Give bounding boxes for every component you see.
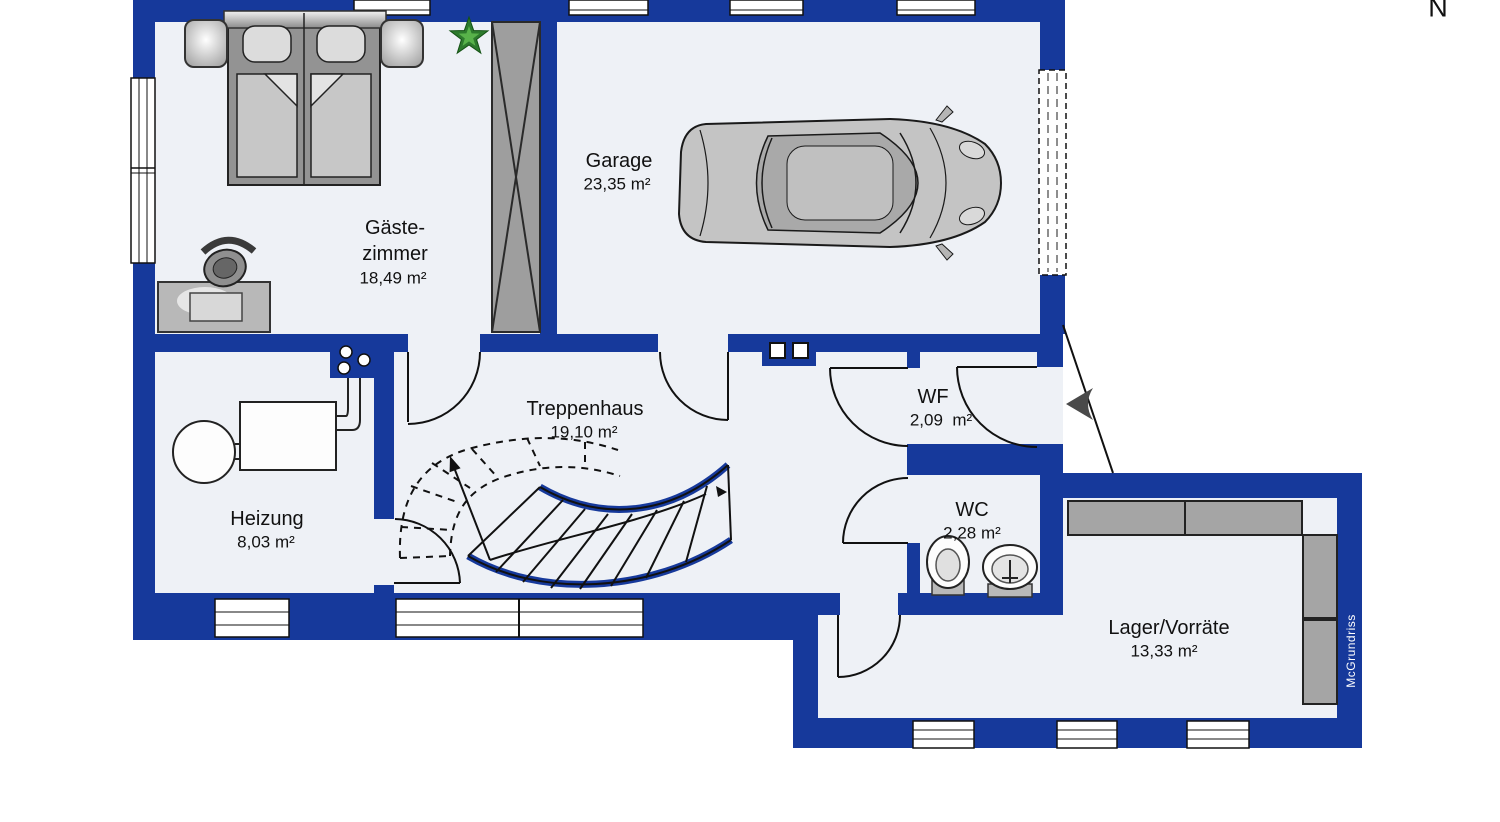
north-indicator: N	[1428, 0, 1448, 22]
doorway-gap	[1037, 367, 1063, 447]
wall	[1040, 473, 1362, 498]
doorway-gap	[840, 593, 898, 615]
sink-icon	[983, 545, 1037, 597]
wall	[907, 352, 920, 368]
room-area-treppenhaus: 19,10 m²	[550, 424, 617, 441]
shelf-icon	[1068, 501, 1185, 535]
room-area-gaestezimmer: 18,49 m²	[359, 270, 426, 287]
room-label-gaestezimmer-line2: zimmer	[362, 244, 428, 264]
floor-corridor	[818, 615, 1063, 718]
room-label-lager: Lager/Vorräte	[1108, 618, 1229, 638]
window	[131, 78, 155, 263]
wall	[480, 334, 658, 352]
window	[215, 599, 289, 637]
wall	[1337, 473, 1362, 748]
toilet-icon	[927, 536, 969, 595]
double-bed-icon	[224, 11, 386, 185]
room-area-garage: 23,35 m²	[583, 176, 650, 193]
garage-door	[1039, 70, 1066, 275]
room-label-gaestezimmer-line1: Gäste-	[365, 218, 425, 238]
room-label-wf: WF	[917, 387, 948, 407]
sideboard-icon	[158, 282, 270, 332]
car-icon	[679, 106, 1001, 260]
room-label-wc: WC	[955, 500, 988, 520]
wall	[1037, 334, 1063, 367]
wardrobe-icon	[492, 22, 540, 332]
nightstand-icon	[185, 20, 227, 67]
wall	[818, 593, 840, 615]
water-tank-icon	[173, 421, 235, 483]
window	[1057, 721, 1117, 748]
room-label-heizung: Heizung	[230, 509, 303, 529]
room-label-treppenhaus: Treppenhaus	[526, 399, 643, 419]
floorplan-drawing	[0, 0, 1500, 822]
wall	[898, 593, 1063, 615]
meter-box-icon	[762, 336, 816, 366]
window	[913, 721, 974, 748]
window	[1187, 721, 1249, 748]
watermark-text: McGrundriss	[1345, 614, 1357, 688]
room-area-heizung: 8,03 m²	[237, 534, 295, 551]
window	[569, 0, 648, 15]
room-area-lager: 13,33 m²	[1130, 643, 1197, 660]
floorplan-canvas: Gäste- zimmer 18,49 m² Garage 23,35 m² T…	[0, 0, 1500, 822]
wall	[1040, 0, 1065, 70]
window	[396, 599, 643, 637]
doorway-gap	[907, 475, 920, 543]
doorway-gap	[408, 334, 480, 352]
wall	[907, 543, 920, 593]
wall	[1040, 275, 1065, 334]
room-label-garage: Garage	[586, 151, 653, 171]
window	[730, 0, 803, 15]
window	[897, 0, 975, 15]
wall	[540, 0, 557, 352]
room-area-wc: 2,28 m²	[943, 525, 1001, 542]
shelf-icon	[1303, 535, 1337, 618]
doorway-gap	[374, 519, 394, 585]
wall	[1037, 447, 1063, 475]
chimney-icon	[330, 338, 378, 378]
shelf-icon	[1303, 620, 1337, 704]
nightstand-icon	[381, 20, 423, 67]
room-area-wf: 2,09 m²	[910, 412, 972, 429]
shelf-icon	[1185, 501, 1302, 535]
doorway-gap	[658, 334, 728, 352]
